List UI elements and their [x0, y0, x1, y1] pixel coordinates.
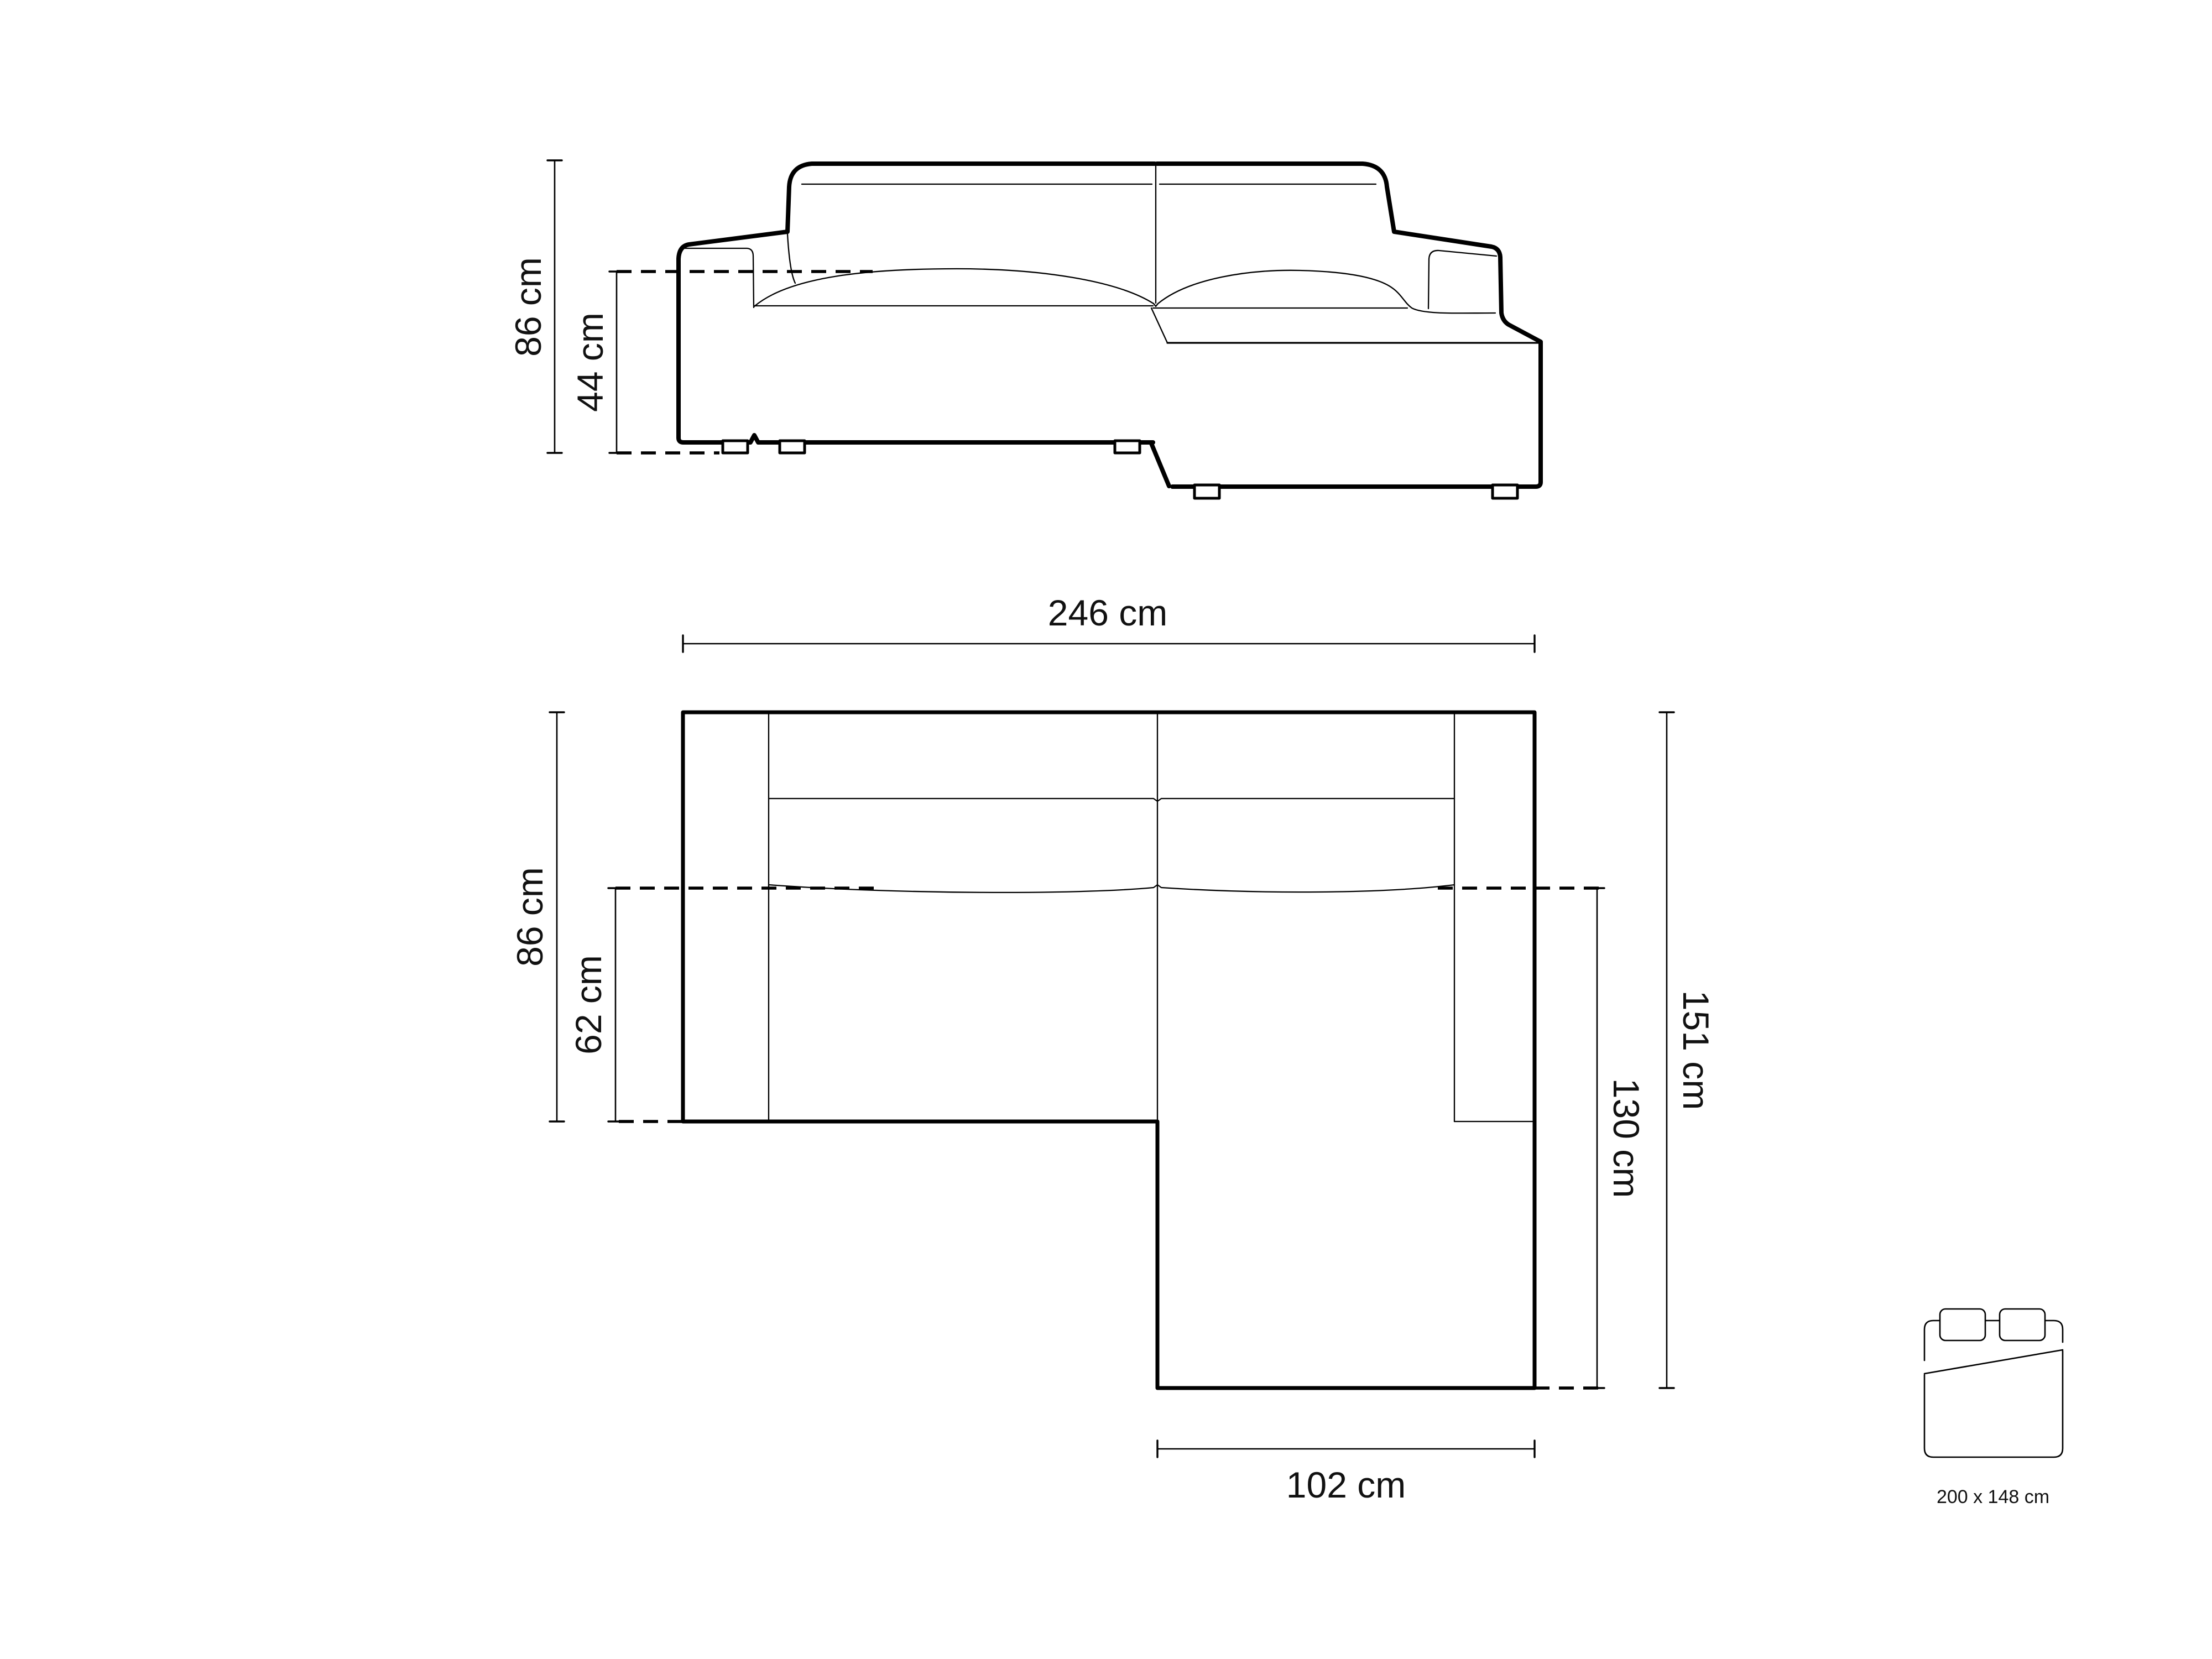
chaise-leg-2 [1493, 485, 1517, 498]
top-total-width-label: 246 cm [1048, 592, 1167, 633]
top-total-depth-label: 151 cm [1676, 990, 1717, 1110]
front-total-height-label: 86 cm [508, 257, 549, 357]
backrest-left-sliver [787, 234, 795, 283]
front-outline-left [679, 164, 1155, 442]
chaise-leg-1 [1194, 485, 1219, 498]
dim-front-total-height: 86 cm [508, 160, 562, 453]
left-armrest-top-edge [685, 248, 754, 307]
top-body-depth-label: 86 cm [509, 867, 550, 967]
bed-duvet-fold-line [1924, 1350, 2063, 1374]
top-chaise-width-label: 102 cm [1286, 1464, 1406, 1505]
dim-top-total-depth: 151 cm [1660, 712, 1717, 1388]
dim-top-chaise-depth: 130 cm [1438, 888, 1647, 1388]
bed-pillow-left [1940, 1309, 1985, 1340]
front-outline-right [1157, 164, 1541, 487]
seat-cushion-left-curve [754, 269, 1154, 306]
dim-top-seat-depth: 62 cm [568, 888, 879, 1121]
chaise-top-left-slant [1151, 308, 1167, 343]
right-armrest-front-edge [1428, 251, 1496, 309]
dim-front-seat-height: 44 cm [570, 272, 873, 453]
bed-size-label: 200 x 148 cm [1937, 1486, 2049, 1507]
dim-top-total-width: 246 cm [683, 592, 1535, 652]
bed-pillow-right [2000, 1309, 2045, 1340]
front-leg-1 [723, 441, 748, 453]
seat-cushion-right-curve [1154, 270, 1495, 313]
front-leg-3 [1115, 441, 1140, 453]
sofa-front-view: 86 cm 44 cm [508, 160, 1541, 498]
top-chaise-depth-label: 130 cm [1606, 1078, 1647, 1198]
bed-outline-lower [1924, 1351, 2063, 1457]
bed-icon: 200 x 148 cm [1924, 1309, 2063, 1507]
backrest-front-edge-plan [769, 799, 1454, 801]
top-seat-depth-label: 62 cm [568, 955, 609, 1055]
sofa-top-view: 246 cm 86 cm 62 cm 151 cm 13 [509, 592, 1717, 1505]
top-outline [683, 712, 1535, 1388]
front-leg-2 [780, 441, 805, 453]
dim-top-body-depth: 86 cm [509, 712, 564, 1121]
dim-top-chaise-width: 102 cm [1157, 1441, 1535, 1505]
front-seat-height-label: 44 cm [570, 312, 611, 412]
sofa-dimension-diagram: 86 cm 44 cm 246 cm 86 [0, 0, 2212, 1659]
chaise-left-bottom-edge [1151, 444, 1169, 486]
